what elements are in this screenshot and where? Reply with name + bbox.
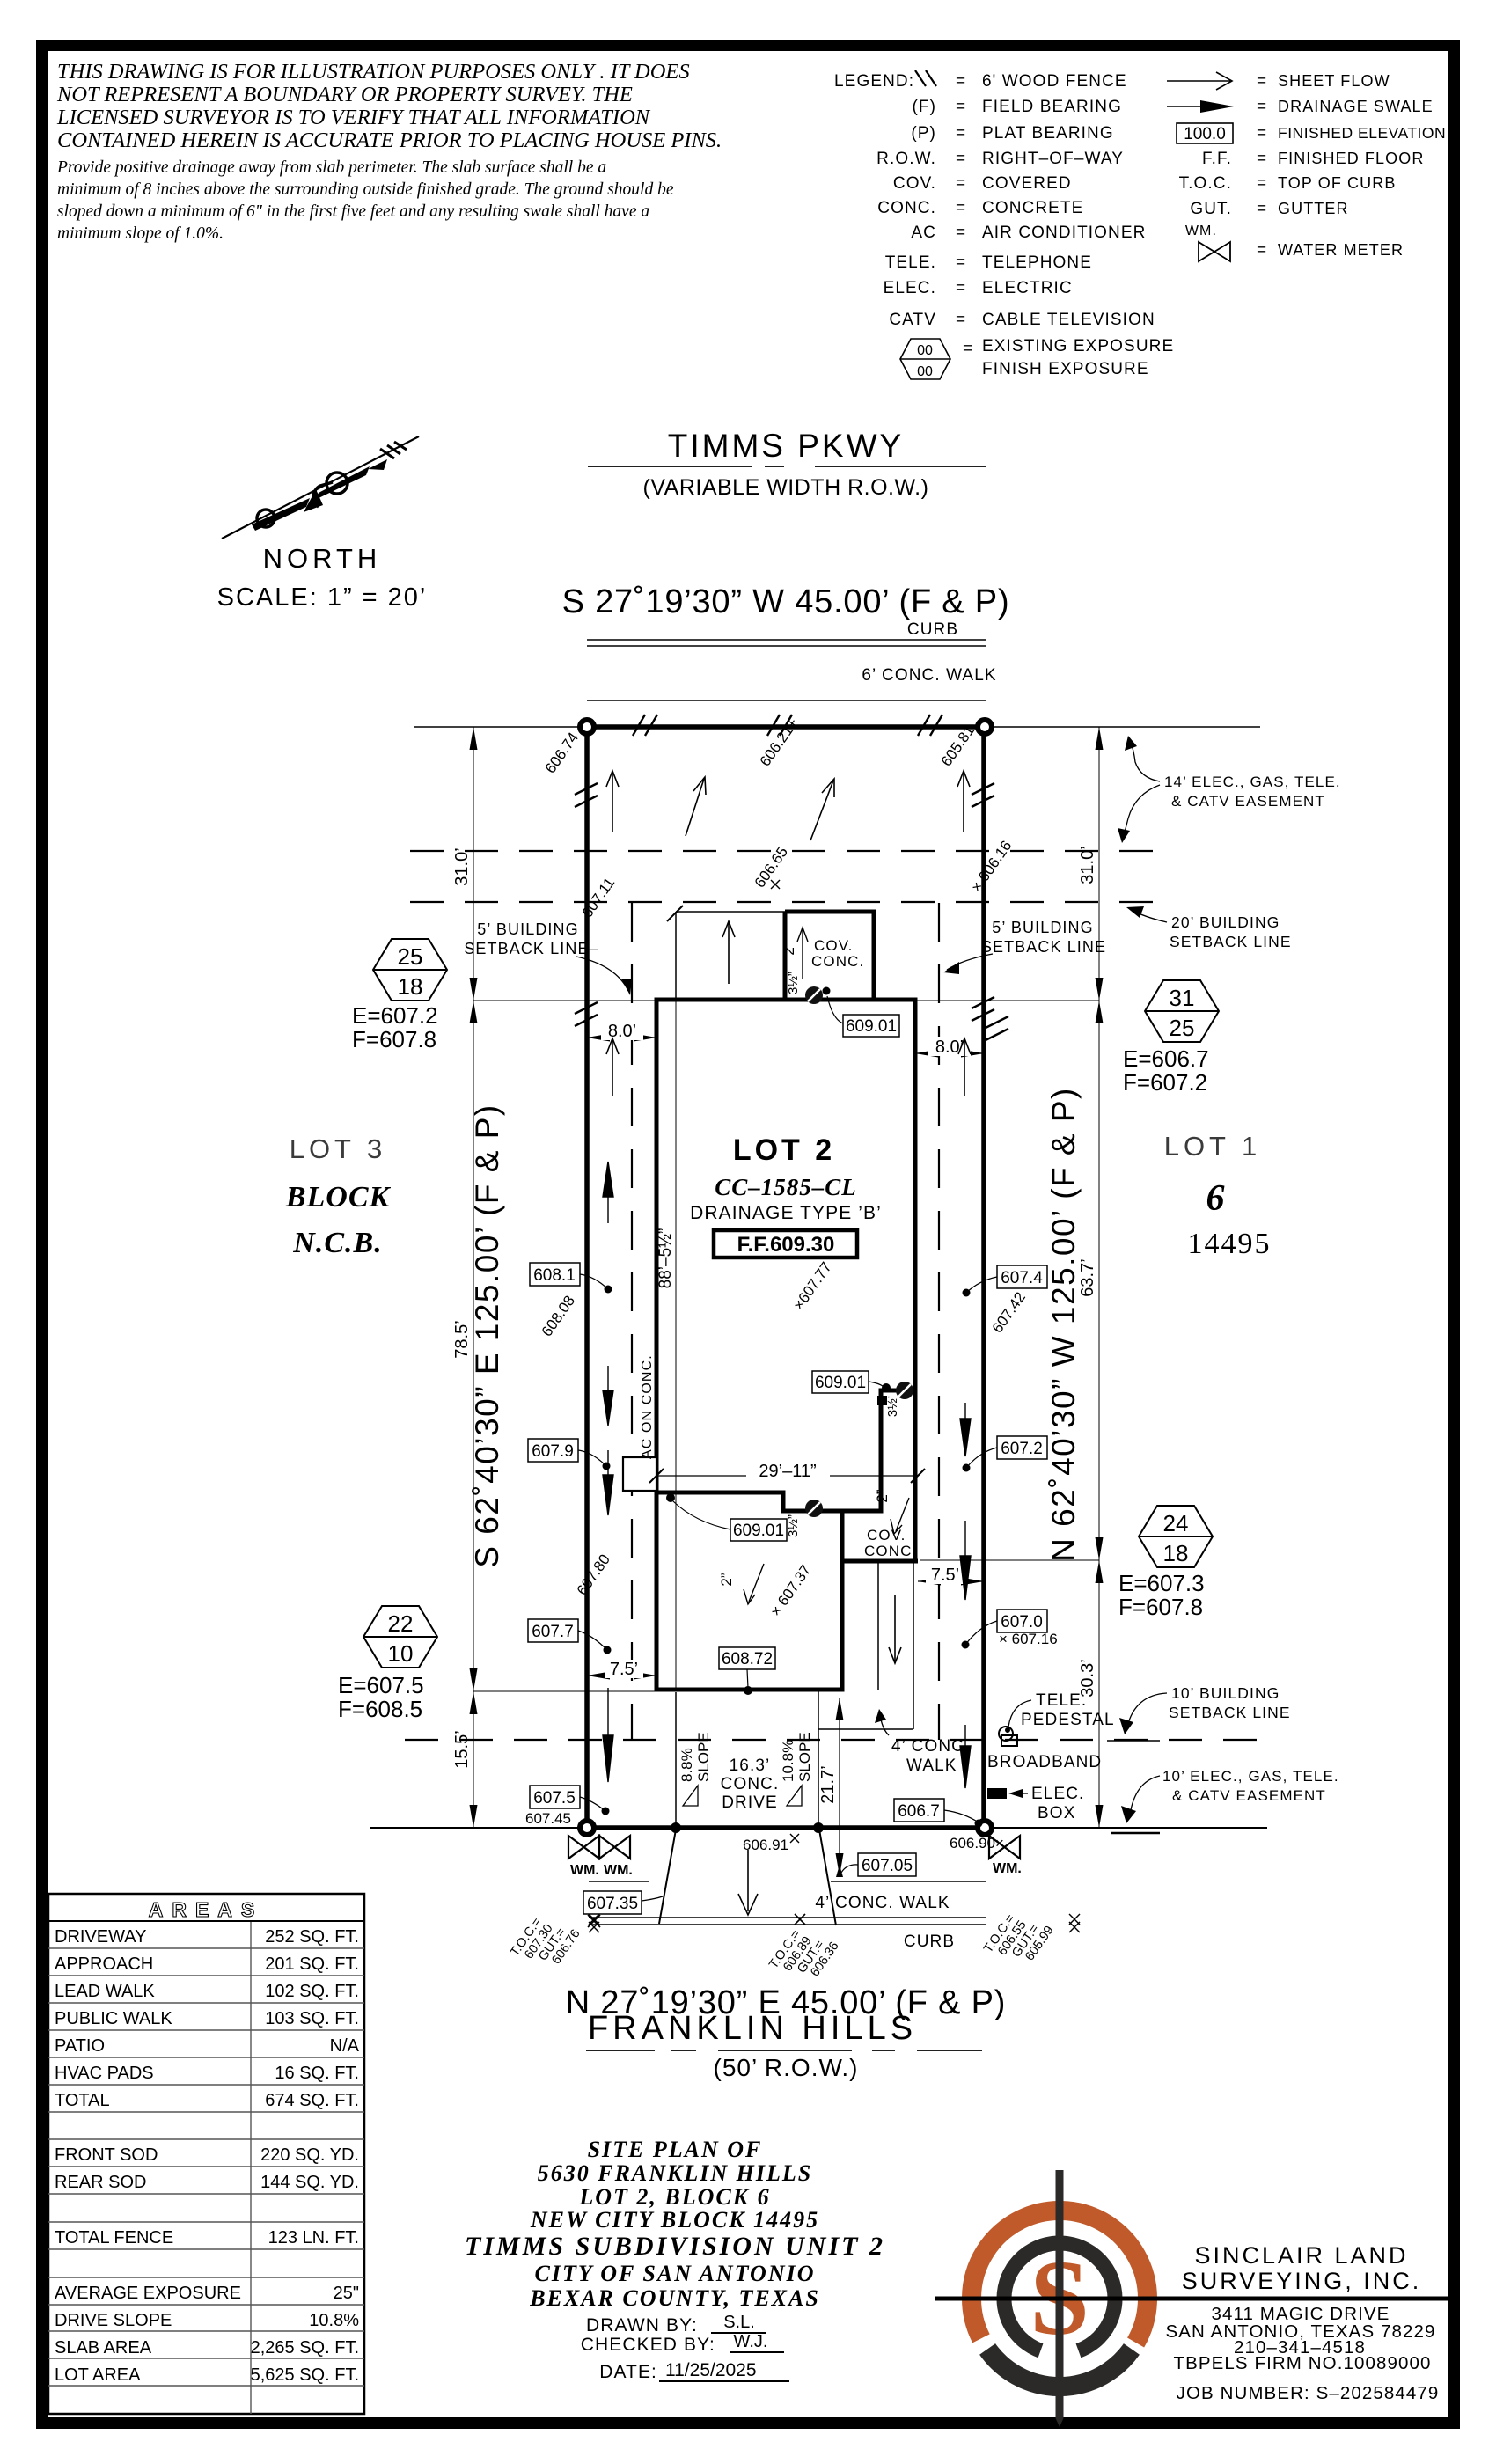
svg-text:607.0: 607.0 bbox=[1001, 1613, 1043, 1632]
svg-text:ELEC.: ELEC. bbox=[884, 279, 936, 297]
svg-text:DRAINAGE SWALE: DRAINAGE SWALE bbox=[1278, 98, 1434, 115]
svg-text:5’ BUILDING: 5’ BUILDING bbox=[992, 919, 1093, 936]
svg-text:E=607.5: E=607.5 bbox=[338, 1672, 424, 1698]
svg-text:220 SQ. YD.: 220 SQ. YD. bbox=[260, 2145, 359, 2165]
svg-text:COV.: COV. bbox=[893, 174, 936, 193]
svg-text:N 62˚40’30” W 125.00’ (F & P): N 62˚40’30” W 125.00’ (F & P) bbox=[1045, 1087, 1082, 1562]
svg-text:LICENSED SURVEYOR IS TO VERIFY: LICENSED SURVEYOR IS TO VERIFY THAT ALL … bbox=[56, 106, 651, 129]
svg-text:TELE.: TELE. bbox=[1036, 1691, 1087, 1710]
svg-text:RIGHT–OF–WAY: RIGHT–OF–WAY bbox=[982, 150, 1124, 168]
svg-text:LOT 1: LOT 1 bbox=[1164, 1131, 1262, 1162]
svg-text:102 SQ. FT.: 102 SQ. FT. bbox=[265, 1982, 359, 2001]
svg-text:SETBACK LINE: SETBACK LINE bbox=[1170, 933, 1292, 950]
svg-text:2”: 2” bbox=[718, 1573, 735, 1586]
svg-text:(P): (P) bbox=[911, 124, 936, 143]
svg-text:EXISTING EXPOSURE: EXISTING EXPOSURE bbox=[982, 337, 1174, 356]
svg-text:4’ CONC.: 4’ CONC. bbox=[891, 1737, 970, 1756]
svg-text:607.4: 607.4 bbox=[1001, 1269, 1043, 1287]
svg-text:=: = bbox=[956, 150, 966, 168]
svg-text:CONC.: CONC. bbox=[721, 1775, 780, 1793]
svg-text:S 27˚19’30” W 45.00’ (F & P): S 27˚19’30” W 45.00’ (F & P) bbox=[562, 583, 1010, 620]
svg-text:SLOPE: SLOPE bbox=[796, 1732, 813, 1782]
svg-text:E=606.7: E=606.7 bbox=[1123, 1045, 1209, 1072]
svg-text:=: = bbox=[956, 174, 966, 193]
svg-text:× 607.16: × 607.16 bbox=[999, 1631, 1058, 1647]
svg-text:CABLE TELEVISION: CABLE TELEVISION bbox=[982, 311, 1155, 329]
svg-text:607.45: 607.45 bbox=[525, 1810, 571, 1827]
svg-text:PLAT BEARING: PLAT BEARING bbox=[982, 124, 1114, 143]
svg-text:6: 6 bbox=[1206, 1178, 1225, 1219]
svg-text:LOT 2, BLOCK 6: LOT 2, BLOCK 6 bbox=[578, 2184, 770, 2210]
svg-text:=: = bbox=[1257, 200, 1267, 218]
svg-text:COV.: COV. bbox=[814, 937, 853, 954]
svg-text:2,265 SQ. FT.: 2,265 SQ. FT. bbox=[251, 2338, 359, 2358]
svg-text:CONCRETE: CONCRETE bbox=[982, 199, 1083, 217]
svg-text:CURB: CURB bbox=[904, 1932, 955, 1951]
svg-text:609.01: 609.01 bbox=[815, 1374, 866, 1392]
svg-text:7.5’: 7.5’ bbox=[610, 1660, 638, 1679]
svg-text:674 SQ. FT.: 674 SQ. FT. bbox=[265, 2091, 359, 2110]
svg-text:WATER METER: WATER METER bbox=[1278, 241, 1404, 259]
svg-text:25": 25" bbox=[334, 2284, 359, 2303]
svg-text:25: 25 bbox=[398, 943, 423, 970]
svg-text:=: = bbox=[956, 311, 966, 329]
svg-text:F=608.5: F=608.5 bbox=[338, 1696, 422, 1722]
svg-text:10.8%: 10.8% bbox=[780, 1740, 796, 1782]
svg-text:FINISH EXPOSURE: FINISH EXPOSURE bbox=[982, 360, 1149, 378]
svg-text:CONTAINED HEREIN IS ACCURATE P: CONTAINED HEREIN IS ACCURATE PRIOR TO PL… bbox=[57, 128, 722, 152]
svg-text:=: = bbox=[1257, 174, 1267, 193]
svg-text:CITY OF SAN ANTONIO: CITY OF SAN ANTONIO bbox=[535, 2261, 816, 2286]
svg-text:& CATV EASEMENT: & CATV EASEMENT bbox=[1171, 793, 1325, 810]
svg-text:N/A: N/A bbox=[330, 2036, 360, 2056]
svg-text:(VARIABLE WIDTH R.O.W.): (VARIABLE WIDTH R.O.W.) bbox=[643, 475, 929, 500]
svg-text:144 SQ. YD.: 144 SQ. YD. bbox=[260, 2173, 359, 2192]
svg-text:HVAC PADS: HVAC PADS bbox=[55, 2064, 154, 2083]
svg-text:TOTAL FENCE: TOTAL FENCE bbox=[55, 2228, 173, 2248]
svg-text:DRIVE: DRIVE bbox=[722, 1793, 778, 1812]
svg-text:NORTH: NORTH bbox=[263, 543, 382, 574]
svg-text:21.7’: 21.7’ bbox=[818, 1765, 838, 1803]
svg-text:=: = bbox=[1257, 72, 1267, 91]
svg-text:5,625 SQ. FT.: 5,625 SQ. FT. bbox=[251, 2365, 359, 2385]
svg-text:606.91: 606.91 bbox=[743, 1837, 788, 1853]
svg-text:3½’: 3½’ bbox=[885, 1396, 900, 1417]
svg-text:5’ BUILDING: 5’ BUILDING bbox=[477, 920, 578, 938]
svg-text:SLAB AREA: SLAB AREA bbox=[55, 2338, 152, 2358]
svg-text:=: = bbox=[956, 72, 966, 91]
svg-text:18: 18 bbox=[1163, 1540, 1189, 1566]
svg-text:F.F.: F.F. bbox=[1202, 150, 1232, 168]
svg-text:COVERED: COVERED bbox=[982, 174, 1072, 193]
svg-text:24: 24 bbox=[1163, 1510, 1189, 1536]
svg-text:8.0’: 8.0’ bbox=[935, 1038, 964, 1057]
svg-text:F=607.2: F=607.2 bbox=[1123, 1069, 1207, 1096]
svg-text:S 62˚40’30” E 125.00’ (F & P): S 62˚40’30” E 125.00’ (F & P) bbox=[469, 1104, 505, 1567]
svg-text:BLOCK: BLOCK bbox=[285, 1181, 392, 1214]
svg-text:minimum of 8 inches above the: minimum of 8 inches above the surroundin… bbox=[57, 180, 674, 199]
svg-text:BROADBAND: BROADBAND bbox=[987, 1753, 1102, 1771]
svg-text:607.35: 607.35 bbox=[587, 1895, 638, 1913]
svg-text:2”: 2” bbox=[874, 1489, 891, 1502]
svg-text:88’–5½”: 88’–5½” bbox=[656, 1228, 675, 1289]
svg-text:AC ON CONC.: AC ON CONC. bbox=[640, 1354, 655, 1459]
svg-text:15.5’: 15.5’ bbox=[452, 1730, 472, 1768]
svg-text:00: 00 bbox=[917, 343, 933, 358]
svg-text:10’ BUILDING: 10’ BUILDING bbox=[1171, 1684, 1280, 1702]
svg-text:PEDESTAL: PEDESTAL bbox=[1021, 1711, 1115, 1729]
svg-text:CURB: CURB bbox=[907, 620, 958, 639]
svg-text:NOT REPRESENT A BOUNDARY OR PR: NOT REPRESENT A BOUNDARY OR PROPERTY SUR… bbox=[56, 83, 633, 106]
svg-text:SCALE: 1” = 20’: SCALE: 1” = 20’ bbox=[217, 583, 428, 612]
svg-text:S.L.: S.L. bbox=[723, 2313, 755, 2332]
svg-text:REAR SOD: REAR SOD bbox=[55, 2173, 146, 2192]
svg-text:LOT AREA: LOT AREA bbox=[55, 2365, 141, 2385]
svg-text:GUTTER: GUTTER bbox=[1278, 200, 1349, 217]
svg-text:TBPELS FIRM NO.10089000: TBPELS FIRM NO.10089000 bbox=[1173, 2353, 1431, 2373]
svg-text:PUBLIC WALK: PUBLIC WALK bbox=[55, 2009, 172, 2028]
svg-text:AC: AC bbox=[911, 224, 936, 242]
svg-text:22: 22 bbox=[388, 1610, 414, 1637]
svg-text:31.0’: 31.0’ bbox=[452, 847, 472, 885]
svg-text:FINISHED FLOOR: FINISHED FLOOR bbox=[1278, 150, 1424, 167]
svg-text:18: 18 bbox=[398, 973, 423, 1000]
svg-text:608.72: 608.72 bbox=[722, 1650, 773, 1668]
svg-text:20’ BUILDING: 20’ BUILDING bbox=[1171, 913, 1280, 931]
svg-text:100.0: 100.0 bbox=[1184, 125, 1226, 143]
svg-text:3½”: 3½” bbox=[786, 972, 801, 994]
svg-text:=: = bbox=[956, 224, 966, 242]
svg-text:4’ CONC. WALK: 4’ CONC. WALK bbox=[815, 1894, 950, 1912]
svg-text:F.F.609.30: F.F.609.30 bbox=[737, 1233, 835, 1257]
svg-text:DATE:: DATE: bbox=[599, 2362, 657, 2382]
svg-text:31: 31 bbox=[1170, 985, 1195, 1011]
svg-text:APPROACH: APPROACH bbox=[55, 1954, 153, 1974]
svg-text:WM.: WM. bbox=[993, 1861, 1022, 1876]
svg-text:TOTAL: TOTAL bbox=[55, 2091, 110, 2110]
svg-text:2”: 2” bbox=[781, 942, 797, 955]
svg-text:103 SQ. FT.: 103 SQ. FT. bbox=[265, 2009, 359, 2028]
svg-text:16.3’: 16.3’ bbox=[730, 1756, 771, 1775]
svg-text:10.8%: 10.8% bbox=[309, 2311, 359, 2330]
svg-text:606.90×: 606.90× bbox=[950, 1835, 1004, 1852]
svg-text:AVERAGE EXPOSURE: AVERAGE EXPOSURE bbox=[55, 2284, 241, 2303]
svg-text:=: = bbox=[1257, 124, 1267, 143]
svg-text:E=607.2: E=607.2 bbox=[352, 1002, 438, 1029]
svg-text:123 LN. FT.: 123 LN. FT. bbox=[268, 2228, 359, 2248]
svg-text:=: = bbox=[956, 98, 966, 116]
svg-text:14’ ELEC., GAS, TELE.: 14’ ELEC., GAS, TELE. bbox=[1164, 774, 1341, 790]
svg-text:201 SQ. FT.: 201 SQ. FT. bbox=[265, 1954, 359, 1974]
svg-text:606.7: 606.7 bbox=[898, 1802, 940, 1821]
svg-text:WALK: WALK bbox=[906, 1756, 957, 1775]
svg-text:WM.: WM. bbox=[1185, 224, 1217, 238]
svg-text:10: 10 bbox=[388, 1640, 414, 1667]
svg-text:WM.: WM. bbox=[604, 1863, 633, 1878]
svg-text:NEW CITY BLOCK 14495: NEW CITY BLOCK 14495 bbox=[530, 2207, 819, 2233]
svg-text:=: = bbox=[963, 340, 973, 358]
svg-text:T.O.C.: T.O.C. bbox=[1179, 174, 1232, 193]
svg-text:TELE.: TELE. bbox=[885, 253, 936, 272]
svg-text:252 SQ. FT.: 252 SQ. FT. bbox=[265, 1927, 359, 1947]
svg-text:F=607.8: F=607.8 bbox=[352, 1026, 436, 1052]
svg-text:LEGEND:: LEGEND: bbox=[834, 72, 914, 91]
svg-text:N.C.B.: N.C.B. bbox=[292, 1227, 382, 1259]
svg-text:TIMMS SUBDIVISION UNIT 2: TIMMS SUBDIVISION UNIT 2 bbox=[465, 2232, 885, 2261]
svg-text:31.0’: 31.0’ bbox=[1078, 846, 1097, 884]
svg-text:TELEPHONE: TELEPHONE bbox=[982, 253, 1092, 272]
svg-text:DRIVE SLOPE: DRIVE SLOPE bbox=[55, 2311, 172, 2330]
svg-text:608.1: 608.1 bbox=[533, 1266, 576, 1285]
svg-text:JOB NUMBER: S–202584479: JOB NUMBER: S–202584479 bbox=[1177, 2383, 1440, 2403]
svg-text:FIELD BEARING: FIELD BEARING bbox=[982, 98, 1122, 116]
svg-text:00: 00 bbox=[917, 364, 933, 379]
svg-text:THIS DRAWING IS FOR ILLUSTRATI: THIS DRAWING IS FOR ILLUSTRATION PURPOSE… bbox=[57, 60, 690, 84]
svg-text:ELEC.: ELEC. bbox=[1031, 1785, 1084, 1803]
svg-text:SLOPE: SLOPE bbox=[695, 1732, 712, 1782]
svg-text:GUT.: GUT. bbox=[1190, 200, 1232, 218]
svg-text:CONC.: CONC. bbox=[811, 953, 864, 970]
svg-text:SHEET FLOW: SHEET FLOW bbox=[1278, 72, 1390, 90]
svg-text:6' WOOD FENCE: 6' WOOD FENCE bbox=[982, 72, 1127, 91]
svg-text:LEAD WALK: LEAD WALK bbox=[55, 1982, 155, 2001]
svg-text:SETBACK LINE: SETBACK LINE bbox=[1169, 1704, 1291, 1721]
svg-text:R.O.W.: R.O.W. bbox=[876, 150, 936, 168]
svg-text:=: = bbox=[956, 199, 966, 217]
svg-text:7.5’: 7.5’ bbox=[931, 1566, 959, 1585]
svg-text:AREAS: AREAS bbox=[149, 1898, 264, 1921]
svg-text:CC–1585–CL: CC–1585–CL bbox=[715, 1174, 857, 1200]
svg-text:DRAWN BY:: DRAWN BY: bbox=[586, 2315, 698, 2336]
svg-text:=: = bbox=[956, 253, 966, 272]
svg-text:609.01: 609.01 bbox=[733, 1522, 784, 1540]
svg-text:& CATV EASEMENT: & CATV EASEMENT bbox=[1172, 1787, 1326, 1804]
svg-text:25: 25 bbox=[1170, 1015, 1195, 1041]
svg-text:607.5: 607.5 bbox=[533, 1789, 576, 1808]
svg-text:5630 FRANKLIN HILLS: 5630 FRANKLIN HILLS bbox=[538, 2160, 813, 2186]
svg-text:FINISHED ELEVATION: FINISHED ELEVATION bbox=[1278, 124, 1446, 142]
svg-text:F=607.8: F=607.8 bbox=[1118, 1594, 1203, 1620]
svg-text:=: = bbox=[1257, 150, 1267, 168]
svg-text:W.J.: W.J. bbox=[734, 2332, 768, 2351]
svg-text:CONC.: CONC. bbox=[877, 199, 936, 217]
svg-text:11/25/2025: 11/25/2025 bbox=[665, 2360, 757, 2380]
svg-text:SITE PLAN OF: SITE PLAN OF bbox=[588, 2137, 763, 2162]
svg-text:607.2: 607.2 bbox=[1001, 1440, 1043, 1458]
svg-text:29’–11”: 29’–11” bbox=[759, 1462, 816, 1481]
svg-text:BOX: BOX bbox=[1038, 1804, 1075, 1822]
svg-text:607.9: 607.9 bbox=[532, 1442, 574, 1461]
svg-text:TOP OF CURB: TOP OF CURB bbox=[1278, 174, 1396, 192]
svg-text:sloped down a minimum of 6" in: sloped down a minimum of 6" in the first… bbox=[57, 202, 649, 221]
svg-text:LOT 2: LOT 2 bbox=[733, 1133, 835, 1167]
svg-text:CONC.: CONC. bbox=[864, 1543, 917, 1559]
svg-text:607.7: 607.7 bbox=[532, 1623, 574, 1641]
svg-text:8.8%: 8.8% bbox=[678, 1748, 695, 1782]
svg-text:10’ ELEC., GAS, TELE.: 10’ ELEC., GAS, TELE. bbox=[1162, 1768, 1339, 1785]
svg-text:SETBACK LINE–: SETBACK LINE– bbox=[464, 940, 598, 957]
svg-text:SETBACK LINE: SETBACK LINE bbox=[981, 938, 1106, 956]
svg-text:=: = bbox=[956, 279, 966, 297]
svg-text:DRIVEWAY: DRIVEWAY bbox=[55, 1927, 146, 1947]
svg-text:AIR CONDITIONER: AIR CONDITIONER bbox=[982, 224, 1146, 242]
svg-text:FRONT SOD: FRONT SOD bbox=[55, 2145, 158, 2165]
svg-text:=: = bbox=[956, 124, 966, 143]
svg-text:609.01: 609.01 bbox=[846, 1017, 897, 1036]
svg-text:3½”: 3½” bbox=[786, 1514, 801, 1537]
svg-text:=: = bbox=[1257, 98, 1267, 116]
svg-text:ELECTRIC: ELECTRIC bbox=[982, 279, 1073, 297]
svg-text:CATV: CATV bbox=[889, 311, 936, 329]
svg-text:=: = bbox=[1257, 241, 1267, 260]
svg-text:TIMMS PKWY: TIMMS PKWY bbox=[668, 428, 904, 464]
svg-text:CHECKED BY:: CHECKED BY: bbox=[581, 2335, 715, 2355]
svg-text:16 SQ. FT.: 16 SQ. FT. bbox=[275, 2064, 359, 2083]
svg-text:(50’ R.O.W.): (50’ R.O.W.) bbox=[714, 2054, 859, 2081]
svg-text:Provide positive drainage away: Provide positive drainage away from slab… bbox=[56, 158, 606, 177]
svg-text:SINCLAIR LAND: SINCLAIR LAND bbox=[1194, 2242, 1408, 2269]
svg-text:FRANKLIN HILLS: FRANKLIN HILLS bbox=[588, 2010, 917, 2047]
svg-text:minimum slope of 1.0%.: minimum slope of 1.0%. bbox=[57, 224, 224, 243]
svg-text:WM.: WM. bbox=[570, 1863, 599, 1878]
svg-text:14495: 14495 bbox=[1188, 1228, 1272, 1260]
svg-text:COV.: COV. bbox=[867, 1527, 906, 1544]
svg-text:SURVEYING, INC.: SURVEYING, INC. bbox=[1182, 2268, 1422, 2294]
svg-text:DRAINAGE TYPE ’B’: DRAINAGE TYPE ’B’ bbox=[690, 1203, 882, 1223]
svg-text:BEXAR COUNTY, TEXAS: BEXAR COUNTY, TEXAS bbox=[529, 2285, 820, 2311]
svg-text:607.05: 607.05 bbox=[862, 1857, 913, 1875]
svg-text:E=607.3: E=607.3 bbox=[1118, 1570, 1205, 1596]
svg-text:(F): (F) bbox=[912, 98, 936, 116]
svg-text:6’ CONC. WALK: 6’ CONC. WALK bbox=[862, 666, 996, 685]
svg-text:LOT 3: LOT 3 bbox=[290, 1133, 387, 1164]
svg-text:PATIO: PATIO bbox=[55, 2036, 105, 2056]
